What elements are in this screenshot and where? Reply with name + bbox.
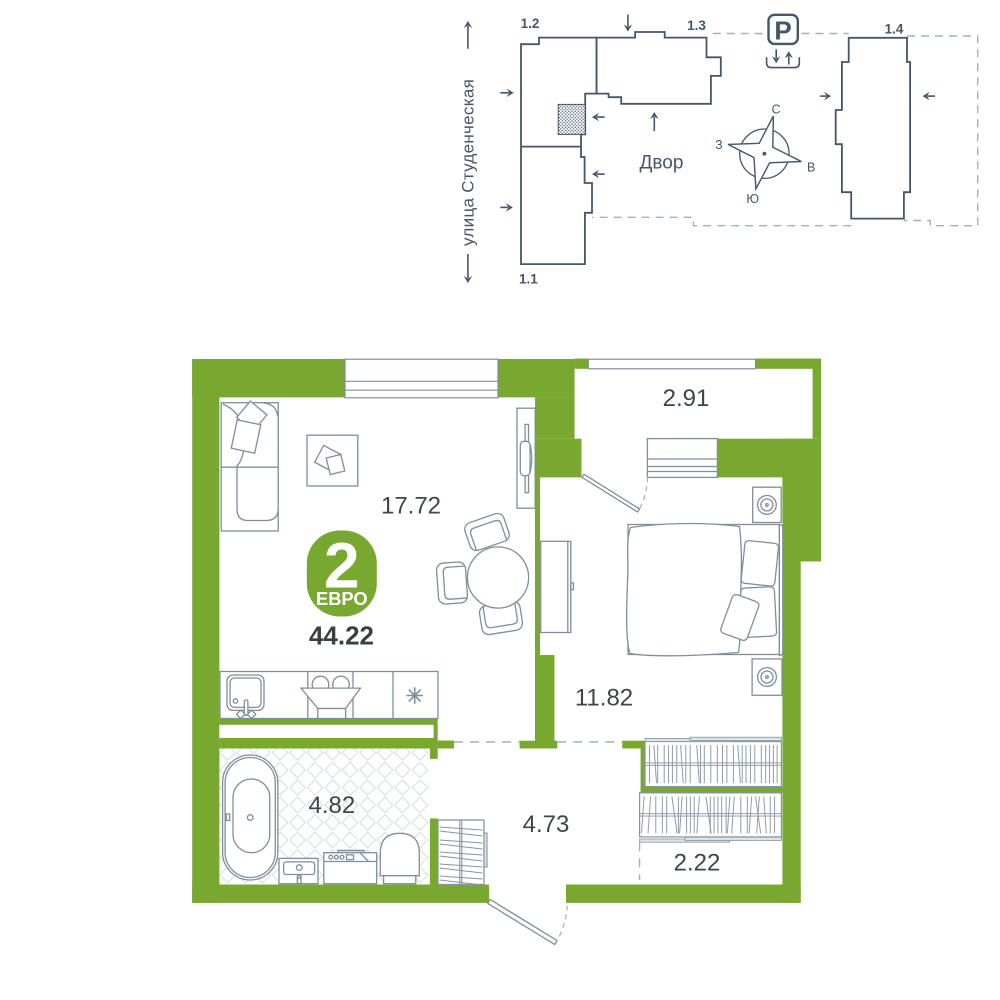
svg-text:4.82: 4.82 xyxy=(309,792,356,819)
svg-text:1.1: 1.1 xyxy=(519,272,538,287)
svg-text:1.3: 1.3 xyxy=(687,18,706,33)
svg-text:2.22: 2.22 xyxy=(674,850,721,877)
svg-text:Ю: Ю xyxy=(746,192,759,206)
svg-text:1.2: 1.2 xyxy=(521,16,540,31)
svg-text:В: В xyxy=(807,160,815,174)
svg-text:11.82: 11.82 xyxy=(575,685,633,712)
svg-text:ЕВРО: ЕВРО xyxy=(316,588,368,609)
svg-text:З: З xyxy=(715,138,723,152)
svg-text:4.73: 4.73 xyxy=(523,811,570,838)
svg-text:2.91: 2.91 xyxy=(663,385,710,412)
svg-text:С: С xyxy=(771,102,780,116)
svg-text:1.4: 1.4 xyxy=(885,22,904,37)
svg-text:P: P xyxy=(774,16,791,46)
svg-text:улица Студенческая: улица Студенческая xyxy=(459,79,478,246)
svg-text:17.72: 17.72 xyxy=(381,493,441,520)
svg-text:Двор: Двор xyxy=(640,153,684,174)
svg-text:44.22: 44.22 xyxy=(309,621,374,651)
